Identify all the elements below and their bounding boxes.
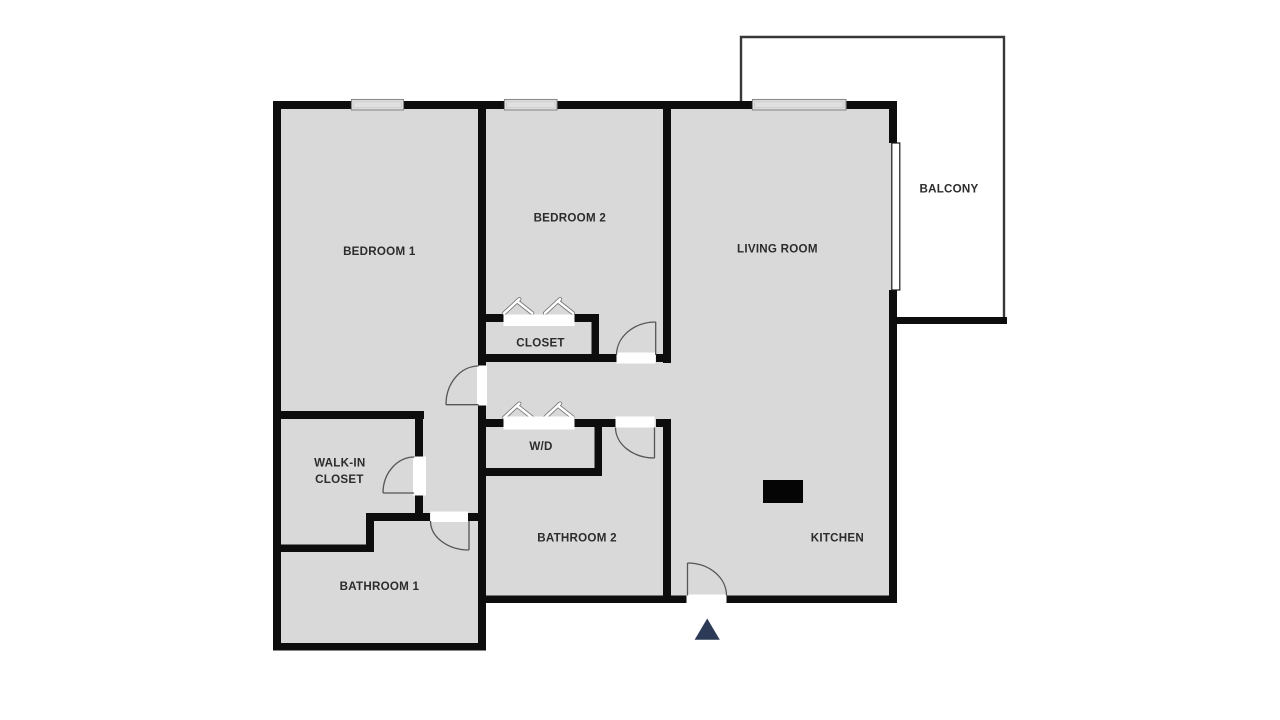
svg-text:BATHROOM 1: BATHROOM 1	[340, 580, 420, 593]
svg-text:WALK-IN: WALK-IN	[314, 457, 365, 470]
svg-text:CLOSET: CLOSET	[516, 337, 565, 350]
svg-text:BEDROOM 2: BEDROOM 2	[534, 212, 606, 225]
svg-text:CLOSET: CLOSET	[315, 473, 364, 486]
svg-text:BEDROOM 1: BEDROOM 1	[343, 245, 416, 258]
svg-text:BALCONY: BALCONY	[919, 183, 978, 196]
svg-text:KITCHEN: KITCHEN	[811, 532, 864, 545]
svg-text:BATHROOM 2: BATHROOM 2	[537, 532, 617, 545]
svg-text:LIVING ROOM: LIVING ROOM	[737, 243, 818, 256]
svg-text:W/D: W/D	[529, 440, 552, 453]
